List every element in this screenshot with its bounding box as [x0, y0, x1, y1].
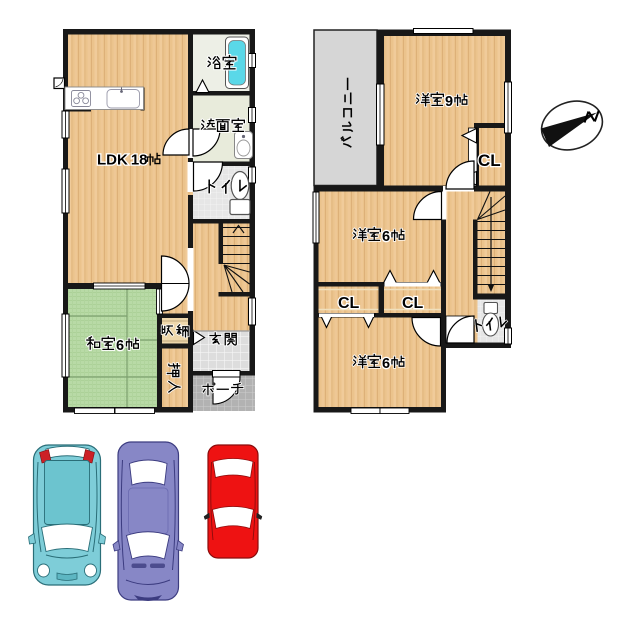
svg-text:LDK18: LDK18 — [97, 152, 148, 169]
svg-text:CL: CL — [478, 151, 501, 170]
svg-text:6: 6 — [116, 338, 124, 354]
svg-text:CL: CL — [338, 295, 360, 312]
svg-text:6: 6 — [382, 356, 390, 372]
svg-text:9: 9 — [445, 94, 453, 110]
svg-text:6: 6 — [382, 229, 390, 245]
svg-text:CL: CL — [402, 295, 424, 312]
